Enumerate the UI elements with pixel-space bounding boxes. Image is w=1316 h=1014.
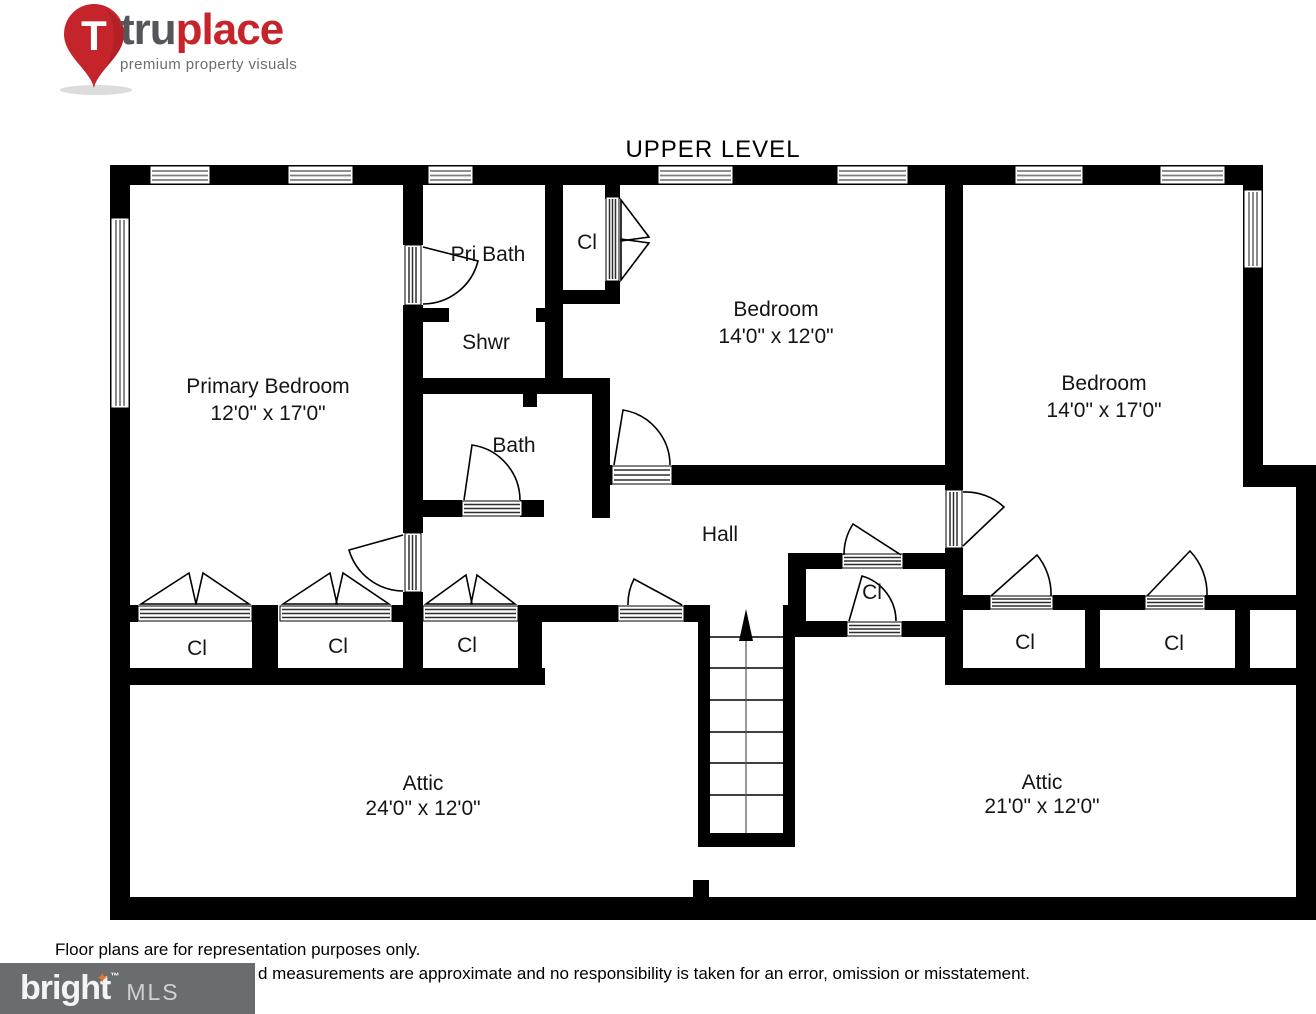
window: [111, 218, 129, 408]
room-label-cl-left-2: Cl: [328, 635, 348, 658]
door-leaf: [606, 197, 619, 281]
room-label-attic-left: Attic: [403, 772, 444, 795]
door-swing: [991, 555, 1051, 596]
disclaimer-line-1: Floor plans are for representation purpo…: [55, 940, 420, 960]
star-icon: ✦: [96, 969, 109, 987]
door-leaf: [618, 606, 684, 621]
bifold-door: [471, 575, 515, 604]
room-label-cl-right-2: Cl: [1164, 632, 1184, 655]
window: [1244, 190, 1262, 268]
door-leaf: [847, 622, 902, 636]
bifold-door: [336, 573, 389, 604]
door-leaf: [462, 501, 522, 516]
door-leaf: [138, 606, 252, 621]
window: [1160, 166, 1225, 184]
door-leaf: [1145, 596, 1205, 609]
brightmls-logo: bright™ ✦ MLS: [0, 963, 255, 1014]
bifold-door: [141, 573, 196, 604]
bifold-door: [283, 573, 337, 604]
room-labels: Primary Bedroom 12'0" x 17'0" Pri Bath C…: [186, 231, 1184, 820]
bifold-door: [426, 575, 472, 604]
room-label-primary-bedroom: Primary Bedroom: [186, 375, 349, 398]
window: [428, 166, 473, 184]
door-swing: [963, 492, 1004, 546]
door-leaf: [423, 606, 518, 621]
door-leaf: [405, 533, 421, 592]
window: [837, 166, 908, 184]
trademark-symbol: ™: [110, 971, 118, 981]
room-label-cl-mid: Cl: [862, 581, 882, 604]
room-label-cl-top: Cl: [577, 231, 597, 254]
disclaimer-line-2: d measurements are approximate and no re…: [258, 964, 1030, 984]
door-leaf: [405, 245, 421, 305]
room-label-bedroom-mid: Bedroom: [733, 298, 818, 321]
door-swing: [614, 410, 670, 465]
room-label-bedroom-right: Bedroom: [1061, 372, 1146, 395]
room-label-attic-right: Attic: [1022, 771, 1063, 794]
door-leaf: [990, 596, 1053, 609]
room-dims-bedroom-mid: 14'0" x 12'0": [718, 325, 833, 348]
stairs: [710, 609, 783, 833]
room-label-cl-left-1: Cl: [187, 637, 207, 660]
door-swing: [628, 579, 682, 605]
room-dims-attic-left: 24'0" x 12'0": [365, 797, 480, 820]
bifold-door: [196, 573, 249, 604]
bifold-door: [621, 239, 649, 280]
door-leaf: [946, 490, 962, 548]
window: [288, 166, 353, 184]
room-label-cl-right-1: Cl: [1015, 631, 1035, 654]
room-label-shwr: Shwr: [462, 331, 510, 354]
window: [150, 166, 210, 184]
room-label-cl-left-3: Cl: [457, 634, 477, 657]
door-leaf: [842, 554, 903, 568]
room-dims-attic-right: 21'0" x 12'0": [984, 795, 1099, 818]
brightmls-suffix: MLS: [126, 979, 179, 1006]
window: [658, 166, 733, 184]
room-label-bath: Bath: [492, 434, 535, 457]
door-swing: [1147, 551, 1207, 596]
door-swing: [844, 524, 901, 555]
room-label-pri-bath: Pri Bath: [451, 243, 526, 266]
bifold-door: [621, 200, 649, 241]
stairs-up-arrow-icon: [739, 609, 753, 641]
floor-plan: Primary Bedroom 12'0" x 17'0" Pri Bath C…: [0, 0, 1316, 1014]
door-leaf: [612, 466, 672, 484]
door-leaf: [280, 606, 392, 621]
room-dims-bedroom-right: 14'0" x 17'0": [1046, 399, 1161, 422]
room-dims-primary-bedroom: 12'0" x 17'0": [210, 402, 325, 425]
window: [1015, 166, 1083, 184]
room-label-hall: Hall: [702, 523, 738, 546]
